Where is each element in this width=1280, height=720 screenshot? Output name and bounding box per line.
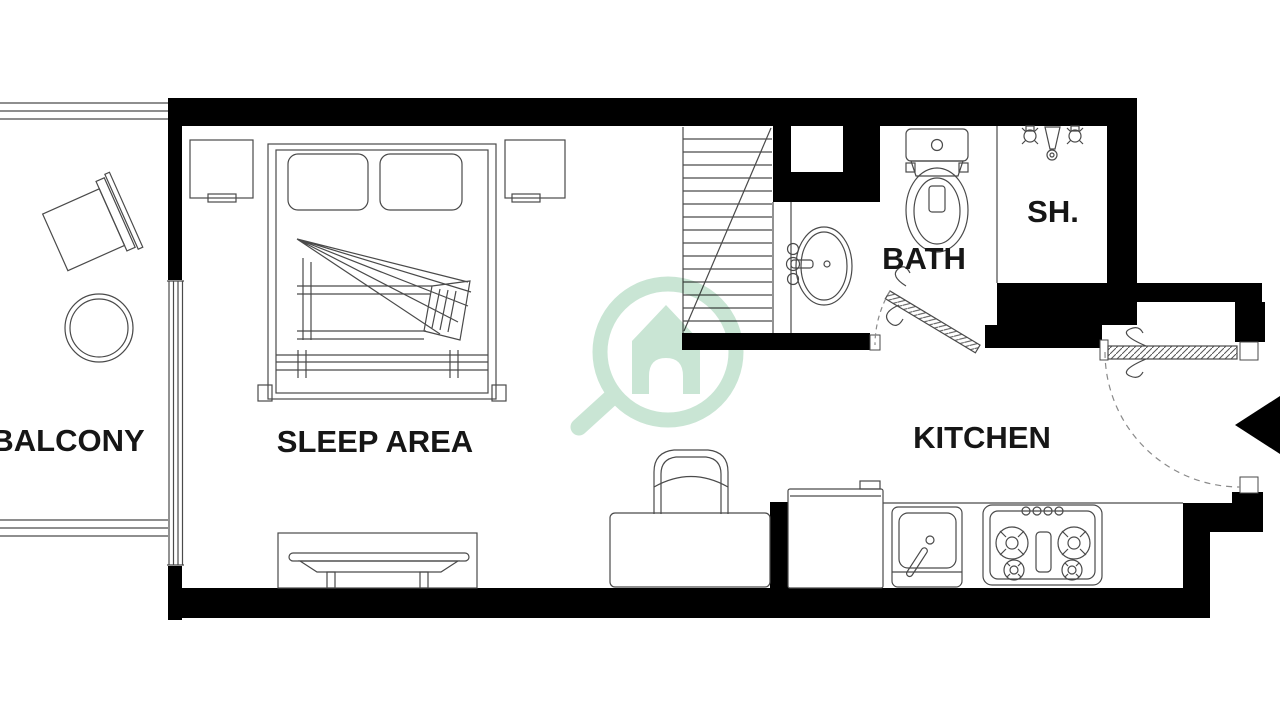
wall-entry-stub xyxy=(1235,302,1265,342)
nightstand-right xyxy=(505,140,565,202)
bathroom-basin xyxy=(787,227,853,305)
entrance-arrow-icon xyxy=(1235,396,1280,454)
wall-entry-top xyxy=(1137,283,1262,302)
balcony-round-table xyxy=(65,294,133,362)
balcony-chair xyxy=(38,172,143,279)
entry-door-jamb xyxy=(1100,340,1108,360)
toilet xyxy=(906,129,968,252)
wall-bath-pillar xyxy=(843,126,880,202)
wall-bottom xyxy=(168,588,1210,618)
fridge xyxy=(788,481,883,588)
wall-east-lower xyxy=(1183,503,1210,618)
window xyxy=(167,281,184,565)
magnifier-handle-icon xyxy=(579,397,612,427)
room-label-balcony: BALCONY xyxy=(0,423,145,458)
wall-sleep-kitchen-stub xyxy=(770,502,788,618)
room-label-kitchen: KITCHEN xyxy=(913,420,1051,455)
entrance-door-handle xyxy=(1126,328,1146,346)
desk xyxy=(610,513,770,587)
room-label-bath: BATH xyxy=(882,241,966,276)
wall-top xyxy=(168,98,1137,126)
nightstand-left xyxy=(190,140,253,202)
desk-chair xyxy=(654,450,728,514)
wall-bath-step xyxy=(791,172,843,202)
entrance-door-handle xyxy=(1126,359,1146,377)
wall-stairs-right xyxy=(773,126,791,202)
floor-plan-page: BALCONY SLEEP AREA BATH SH. KITCHEN xyxy=(0,0,1280,720)
shower-heads xyxy=(1022,126,1083,160)
wall-shower-right xyxy=(1107,126,1137,283)
wall-bath-bottom xyxy=(682,333,870,350)
entrance-door[interactable] xyxy=(1105,328,1240,487)
pillow xyxy=(380,154,462,210)
house-search-logo xyxy=(579,284,736,427)
bench xyxy=(278,533,477,588)
entry-catch-notch xyxy=(1240,342,1258,360)
floor-plan-drawing: BALCONY SLEEP AREA BATH SH. KITCHEN xyxy=(0,0,1280,720)
wall-left-upper xyxy=(168,98,182,280)
entry-catch-notch-2 xyxy=(1240,477,1258,493)
entrance-door-swing-arc xyxy=(1105,352,1240,487)
stove xyxy=(983,505,1102,585)
wall-under-shower xyxy=(997,283,1137,325)
bath-door[interactable] xyxy=(875,267,980,353)
double-bed xyxy=(258,144,506,401)
balcony-railing xyxy=(0,103,168,536)
pillow xyxy=(288,154,368,210)
room-label-sleep-area: SLEEP AREA xyxy=(277,424,473,459)
room-label-shower: SH. xyxy=(1027,194,1079,229)
room-labels: BALCONY SLEEP AREA BATH SH. KITCHEN xyxy=(0,194,1079,459)
wall-kitchen-north xyxy=(985,325,1102,348)
kitchen-sink xyxy=(892,507,962,587)
